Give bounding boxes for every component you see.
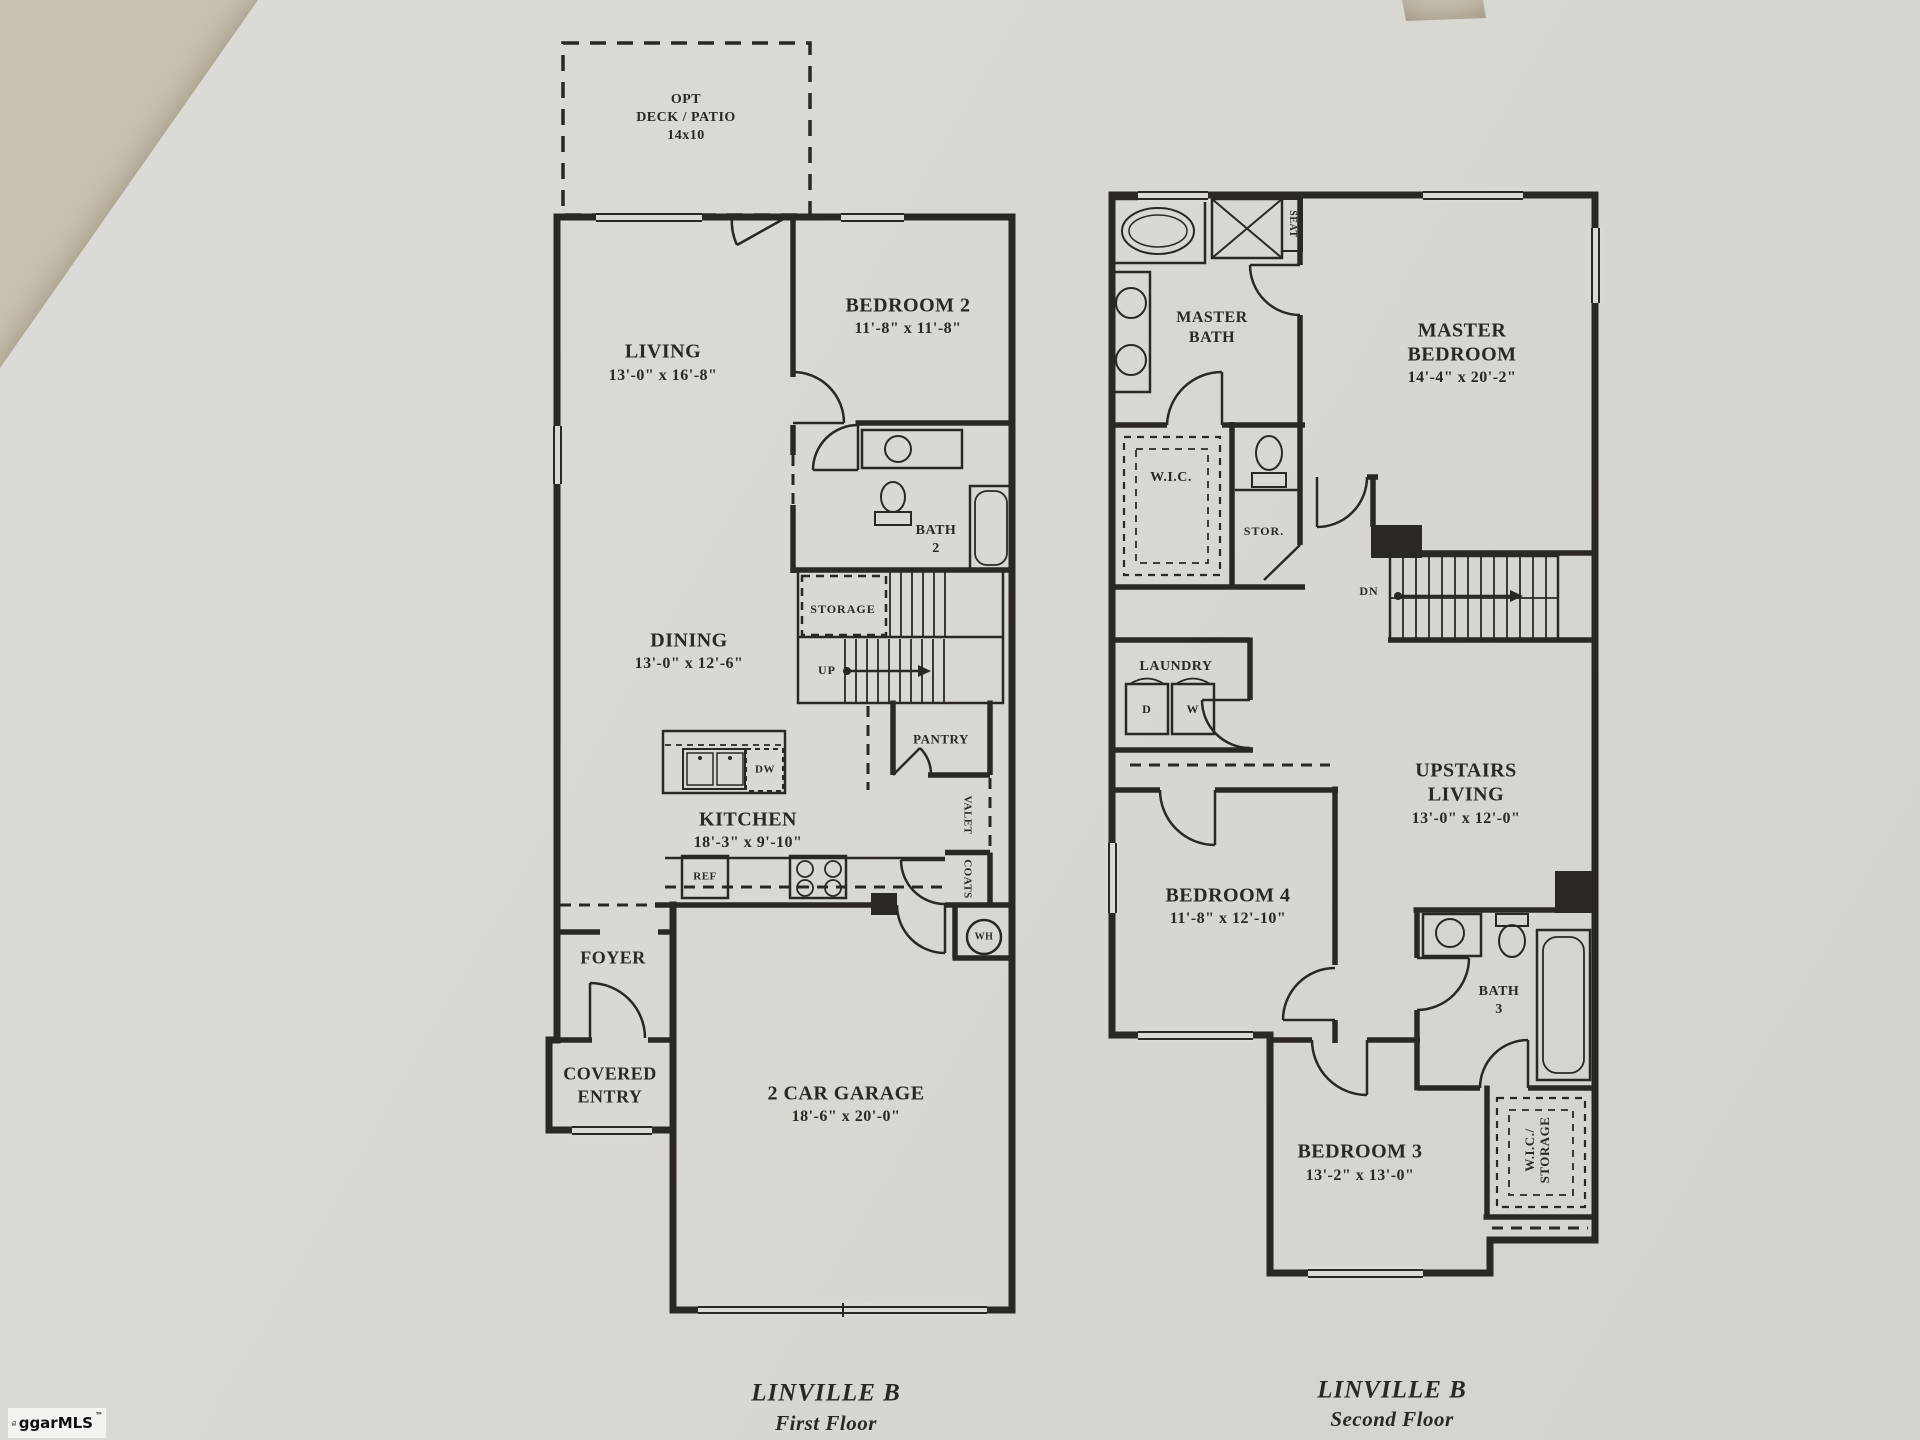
- second-floor-caption-title: LINVILLE B: [1317, 1377, 1467, 1406]
- room-label-bath3-line1: BATH: [1479, 984, 1520, 1000]
- room-dims-bedroom3: 13'-2" x 13'-0": [1306, 1167, 1415, 1185]
- floor-plan-drawing: [0, 0, 1920, 1440]
- room-label-stor: STOR.: [1244, 525, 1284, 539]
- water-heater-label: WH: [975, 931, 994, 943]
- closet-label-valet: VALET: [961, 796, 974, 835]
- room-label-wic-storage: W.I.C./ STORAGE: [1523, 1117, 1553, 1184]
- floor-plan-photo: OPT DECK / PATIO 14x10 LIVING 13'-0" x 1…: [0, 0, 1920, 1440]
- room-dims-garage: 18'-6" x 20'-0": [792, 1108, 901, 1126]
- room-label-bedroom4: BEDROOM 4: [1165, 885, 1290, 908]
- first-floor-caption-subtitle: First Floor: [775, 1411, 877, 1435]
- room-label-covered-entry-line2: ENTRY: [578, 1087, 643, 1108]
- room-label-laundry: LAUNDRY: [1139, 659, 1212, 675]
- dishwasher-label: DW: [755, 764, 775, 777]
- house-icon: [11, 1411, 17, 1435]
- shower-seat-label: SEAT: [1286, 210, 1298, 237]
- refrigerator-label: REF: [693, 871, 717, 884]
- room-label-master-bath-line1: MASTER: [1176, 309, 1247, 327]
- mls-logo-trademark: ™: [95, 1411, 103, 1420]
- room-label-deck-dims: 14x10: [667, 128, 705, 144]
- room-label-deck-line1: OPT: [671, 92, 701, 108]
- room-label-wic: W.I.C.: [1150, 470, 1192, 486]
- room-label-deck-line2: DECK / PATIO: [636, 110, 736, 126]
- closet-label-coats: COATS: [961, 859, 974, 899]
- second-floor-caption-subtitle: Second Floor: [1330, 1407, 1453, 1431]
- room-dims-kitchen: 18'-3" x 9'-10": [694, 834, 803, 852]
- room-label-pantry: PANTRY: [913, 733, 969, 748]
- room-label-wic-storage-line1: W.I.C./: [1523, 1117, 1538, 1184]
- first-floor-caption-title: LINVILLE B: [751, 1380, 901, 1409]
- room-label-storage: STORAGE: [810, 603, 875, 617]
- room-label-master-bedroom-line1: MASTER: [1418, 320, 1507, 343]
- paper-sheet-wrap: OPT DECK / PATIO 14x10 LIVING 13'-0" x 1…: [0, 0, 1920, 1440]
- dryer-label: D: [1142, 703, 1152, 717]
- room-label-master-bedroom-line2: BEDROOM: [1407, 344, 1516, 367]
- paper-sheet: OPT DECK / PATIO 14x10 LIVING 13'-0" x 1…: [0, 0, 1920, 1440]
- stairs-dn-label: DN: [1359, 585, 1378, 599]
- room-label-bath2-number: 2: [932, 541, 940, 557]
- room-dims-living: 13'-0" x 16'-8": [609, 367, 718, 385]
- washer-label: W: [1187, 703, 1200, 717]
- room-label-living: LIVING: [625, 341, 701, 364]
- first-floor-plan: [546, 43, 1016, 1317]
- stairs-up-label: UP: [818, 664, 836, 678]
- room-label-bath3-number: 3: [1495, 1002, 1503, 1018]
- room-dims-bedroom2: 11'-8" x 11'-8": [854, 320, 961, 338]
- room-label-foyer: FOYER: [580, 948, 646, 969]
- room-dims-master-bedroom: 14'-4" x 20'-2": [1408, 369, 1517, 387]
- room-dims-dining: 13'-0" x 12'-6": [635, 655, 744, 673]
- room-dims-upstairs-living: 13'-0" x 12'-0": [1412, 810, 1521, 828]
- mls-logo: ggarMLS ™: [8, 1408, 106, 1438]
- mls-logo-text: ggarMLS: [19, 1414, 93, 1432]
- room-label-covered-entry-line1: COVERED: [563, 1064, 657, 1085]
- room-label-dining: DINING: [650, 630, 727, 653]
- room-label-bedroom3: BEDROOM 3: [1297, 1141, 1422, 1164]
- room-label-bedroom2: BEDROOM 2: [845, 295, 970, 318]
- room-label-wic-storage-line2: STORAGE: [1538, 1117, 1553, 1184]
- room-label-kitchen: KITCHEN: [699, 809, 797, 832]
- room-label-upstairs-living-line1: UPSTAIRS: [1415, 760, 1516, 783]
- room-label-upstairs-living-line2: LIVING: [1428, 784, 1504, 807]
- room-label-master-bath-line2: BATH: [1189, 329, 1235, 347]
- room-dims-bedroom4: 11'-8" x 12'-10": [1170, 910, 1286, 928]
- room-label-garage: 2 CAR GARAGE: [767, 1083, 924, 1106]
- room-label-bath2: BATH: [916, 523, 957, 539]
